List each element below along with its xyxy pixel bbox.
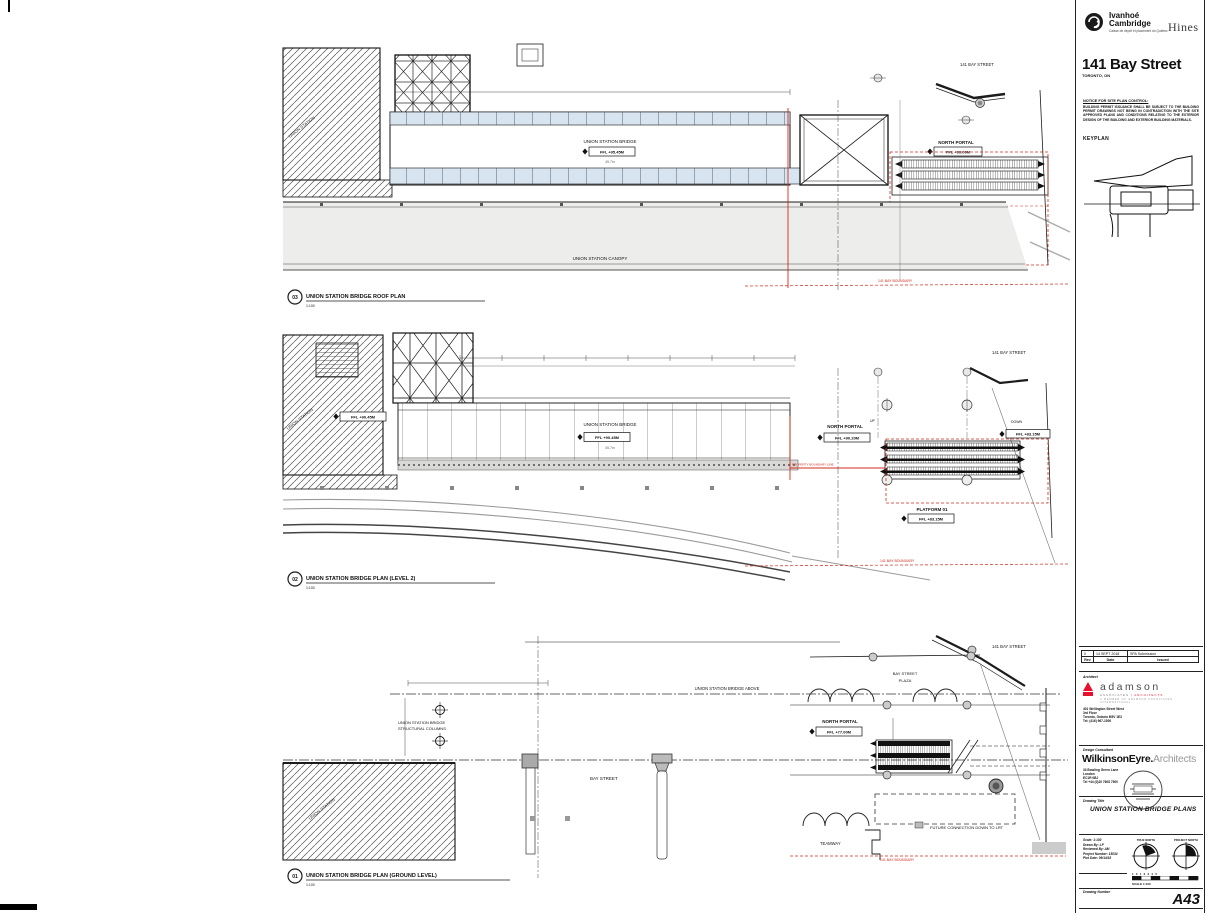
braced-structure <box>393 333 473 403</box>
bay-street-141-label: 141 BAY STREET <box>992 644 1026 649</box>
union-station-building <box>283 763 455 860</box>
scalebar-label: SCALE 1:100 <box>1132 882 1151 886</box>
consultant-label: Design Consultant <box>1083 748 1113 752</box>
drawing-sheet: UNION STATION UNION STATION BRIDGE FFL +… <box>0 0 1218 913</box>
north-portal-label: NORTH PORTAL <box>827 424 863 429</box>
future-connection-label: FUTURE CONNECTION DOWN TO LRT <box>930 825 1004 830</box>
station-ffl: FFL +90.45M <box>351 415 376 420</box>
title-block-right-border <box>1204 0 1205 913</box>
bay-boundary-label: 141 BAY BOUNDARY <box>878 279 913 283</box>
north-portal-label: NORTH PORTAL <box>822 719 858 724</box>
drawing-number-label: Drawing Number <box>1083 890 1110 894</box>
bay-boundary-dashed <box>745 564 1068 566</box>
sheet-corner-mark-top <box>8 0 10 12</box>
notice-heading: NOTICE FOR SITE PLAN CONTROL: <box>1083 99 1199 103</box>
sheet-info: Scale: 1:100 Drawn By: LP Reviewed By: A… <box>1083 838 1118 861</box>
architect-block: adamson ASSOCIATES | ARCHITECTS A MEMBER… <box>1100 681 1200 704</box>
platform-ffl: FFL +83.15M <box>919 517 944 522</box>
drawing-title: UNION STATION BRIDGE PLANS <box>1090 806 1202 813</box>
teamway-label: TEAMWAY <box>820 841 841 846</box>
title-block: Ivanhoé Cambridge Caisse de dépôt et pla… <box>1075 0 1206 913</box>
plan-tag: 01 <box>292 874 298 880</box>
consultant-name: WilkinsonEyre.Architects <box>1082 753 1196 765</box>
architect-name: adamson <box>1100 681 1200 693</box>
bridge-ffl: FFL +95.45M <box>600 150 625 155</box>
keyplan-map <box>1084 145 1200 237</box>
revision-table: 0 14 SEPT 2018 SPA Submission Rev Date I… <box>1081 650 1199 663</box>
ground-plan-drawing: 141 BAY STREET BAY STREET PLAZA UNION ST… <box>280 628 1070 890</box>
consultant-address: 33 Bowling Green Lane London EC1R 0BJ Te… <box>1083 769 1118 785</box>
architect-sub2: ARCHITECTS <box>1134 693 1163 697</box>
plaza-label-1: BAY STREET <box>893 671 918 676</box>
plan-tag: 02 <box>292 577 298 583</box>
ivanhoe-name-2: Cambridge <box>1109 20 1169 28</box>
plan-title: UNION STATION BRIDGE PLAN (LEVEL 2) <box>306 576 416 582</box>
architect-tagline: A MEMBER OF ADAMSON ASSOCIATES INTERNATI… <box>1100 698 1200 704</box>
plan-tag: 03 <box>292 295 298 301</box>
down-ffl: FFL +83.15M <box>1016 432 1041 437</box>
ivanhoe-sub: Caisse de dépôt et placement du Québec <box>1109 30 1169 34</box>
braced-skylight <box>395 55 470 115</box>
architect-label: Architect <box>1083 675 1098 679</box>
architect-stamp <box>1122 769 1164 811</box>
scalebar-unit: m <box>1196 876 1199 880</box>
bridge-dim: 45.7m <box>605 446 615 450</box>
project-location: TORONTO, ON <box>1082 73 1202 78</box>
drawing-title-label: Drawing Title <box>1083 799 1104 803</box>
escalator-arrows-left <box>895 161 902 189</box>
bay-boundary-label: 141 BAY BOUNDARY <box>880 858 915 862</box>
bridge-dim: 45.7m <box>605 160 615 164</box>
down-label: DOWN <box>1011 420 1023 424</box>
bay-boundary-label: 141 BAY BOUNDARY <box>880 559 915 563</box>
bay-boundary-dashed <box>745 284 1068 286</box>
street-fixtures <box>522 754 672 859</box>
north-portal-ffl: FFL +77.00M <box>827 730 852 735</box>
north-portal-ffl: FFL +90.20M <box>835 436 860 441</box>
bridge-label: UNION STATION BRIDGE <box>583 139 636 144</box>
north-portal-label: NORTH PORTAL <box>938 140 974 145</box>
plan-scale: 1:100 <box>306 883 315 887</box>
plan-title: UNION STATION BRIDGE PLAN (GROUND LEVEL) <box>306 873 437 879</box>
street-curves <box>283 499 930 580</box>
teamway-wall <box>865 830 880 860</box>
hines-logo: Hines <box>1168 20 1199 35</box>
architect-address: 401 Wellington Street West 3rd Floor Tor… <box>1083 708 1124 724</box>
station-roof-detail <box>316 343 358 377</box>
bay-street-building-wall <box>936 84 1005 98</box>
scalebar <box>1132 876 1202 881</box>
adamson-logo-icon <box>1083 682 1093 696</box>
plan-scale: 1:100 <box>306 586 315 590</box>
bridge-label: UNION STATION BRIDGE <box>583 422 636 427</box>
project-north-icon <box>1172 842 1200 870</box>
canopy-label: UNION STATION CANOPY <box>573 256 628 261</box>
bridge-above-label: UNION STATION BRIDGE ABOVE <box>695 686 760 691</box>
stair-escalator <box>870 740 1050 773</box>
structural-columns-label-2: STRUCTURAL COLUMNS <box>398 726 446 731</box>
bay-street-141-label: 141 BAY STREET <box>992 350 1026 355</box>
up-label: UP <box>870 419 876 423</box>
level2-plan-drawing: 141 BAY STREET UNION STATION FFL +90.45M… <box>280 328 1070 593</box>
sheet-corner-mark-bottom <box>0 904 37 910</box>
column-markers <box>320 486 779 490</box>
rev-col-rev: Rev <box>1082 657 1094 663</box>
notice-body: BUILDING PERMIT ISSUANCE SHALL BE SUBJEC… <box>1083 105 1199 122</box>
bridge-ffl: FFL +90.45M <box>595 435 620 440</box>
plan-title: UNION STATION BRIDGE ROOF PLAN <box>306 294 405 300</box>
architect-sub1: ASSOCIATES <box>1100 693 1129 697</box>
union-station-canopy <box>283 202 1028 270</box>
ivanhoe-cambridge-logo-icon <box>1084 12 1104 32</box>
roof-plan-drawing: UNION STATION UNION STATION BRIDGE FFL +… <box>280 40 1070 310</box>
street-edge-lines <box>1028 212 1070 260</box>
facade-ticks <box>1040 703 1046 780</box>
drawing-number: A43 <box>1136 891 1200 908</box>
bay-street-141-label: 141 BAY STREET <box>960 62 994 67</box>
project-title: 141 Bay Street <box>1082 56 1202 73</box>
plaza-label-2: PLAZA <box>899 678 912 683</box>
true-north-icon <box>1132 842 1160 870</box>
rev-col-issued: Issued <box>1128 657 1199 663</box>
platform-label: PLATFORM 01 <box>917 507 948 512</box>
bay-street-building-wall <box>970 368 1028 383</box>
union-station-building <box>283 48 380 180</box>
future-connection-zone <box>875 794 1015 824</box>
property-boundary-label: PROPERTY BOUNDARY LINE <box>792 463 834 467</box>
bay-street-label: BAY STREET <box>590 776 618 781</box>
plan-scale: 1:100 <box>306 304 315 308</box>
keyplan-heading: KEYPLAN <box>1083 136 1109 142</box>
rev-col-date: Date <box>1094 657 1128 663</box>
